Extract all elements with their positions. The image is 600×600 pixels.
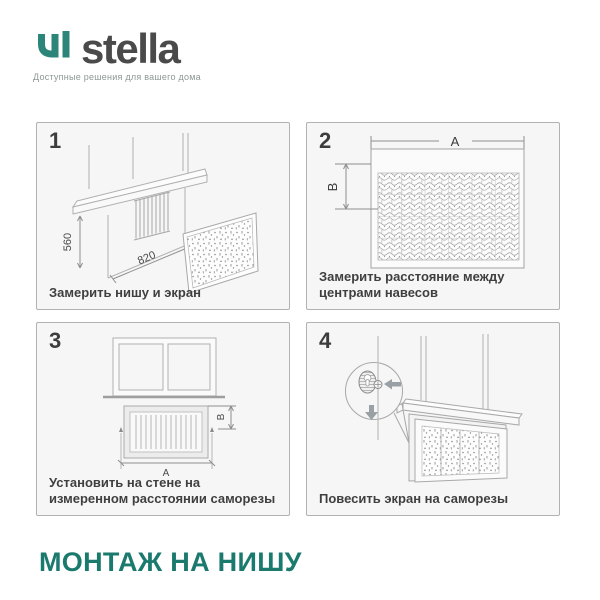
step-caption: Установить на стене на измеренном рассто… xyxy=(49,475,281,508)
dim-b-label: B xyxy=(325,183,340,192)
stella-mark-icon xyxy=(33,30,75,68)
step3-illustration-wall-marking: A B xyxy=(37,329,291,491)
step2-illustration-screen-front: A B xyxy=(307,131,561,287)
dim-width-label: 820 xyxy=(136,249,158,267)
page-title: МОНТАЖ НА НИШУ xyxy=(39,547,302,578)
instruction-sheet: stella Доступные решения для вашего дома… xyxy=(0,0,600,600)
dim-height-label: 560 xyxy=(62,233,74,251)
step-panel-2: 2 A B Замерить расстояние между центрами… xyxy=(306,122,560,310)
brand-tagline: Доступные решения для вашего дома xyxy=(33,72,201,82)
step-panel-1: 1 56 xyxy=(36,122,290,310)
dim-b-label: B xyxy=(216,413,227,420)
brand-name: stella xyxy=(81,30,179,68)
step-caption: Замерить расстояние между центрами навес… xyxy=(319,269,551,302)
header-logo: stella Доступные решения для вашего дома xyxy=(33,30,201,82)
step-panel-3: 3 A xyxy=(36,322,290,516)
step-caption: Повесить экран на саморезы xyxy=(319,491,551,508)
step1-illustration-measure-niche: 560 820 xyxy=(37,131,291,301)
dim-a-label: A xyxy=(451,134,460,149)
step-panel-4: 4 xyxy=(306,322,560,516)
step-caption: Замерить нишу и экран xyxy=(49,285,281,302)
step4-illustration-hang-screen xyxy=(307,329,561,493)
